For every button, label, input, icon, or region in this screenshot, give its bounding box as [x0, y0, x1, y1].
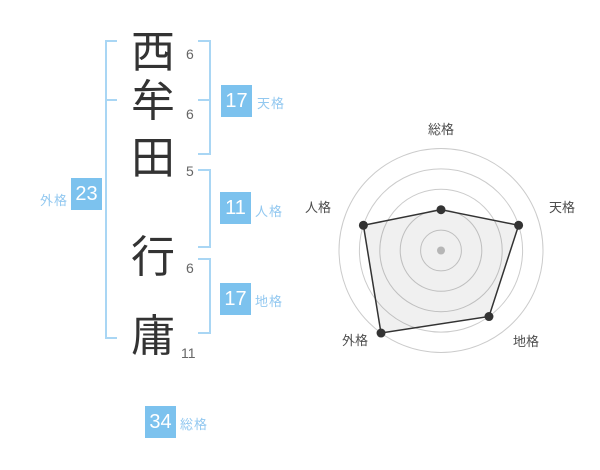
fortune-radar-chart: 総格天格地格外格人格 [303, 112, 583, 382]
gaikaku-bracket-tick-mid [105, 99, 117, 101]
gaikaku-bracket-tick-top [105, 40, 117, 42]
jinkaku-bracket-tick-bottom [198, 246, 211, 248]
name-char-4: 行 [123, 235, 183, 281]
soukaku-label: 総格 [180, 414, 208, 433]
seimei-handan-panel: 西 牟 田 行 庸 6 6 5 6 11 17 天格 11 人格 17 地格 外… [0, 0, 600, 470]
tenkaku-value-badge: 17 [221, 85, 252, 117]
radar-axis-label-2: 地格 [513, 334, 539, 349]
chikaku-value-badge: 17 [220, 283, 251, 315]
chikaku-label: 地格 [255, 291, 283, 310]
stroke-count-1: 6 [186, 46, 194, 62]
stroke-count-5: 11 [181, 345, 196, 361]
radar-chart-svg: 総格天格地格外格人格 [303, 112, 583, 382]
soukaku-value-badge: 34 [145, 406, 176, 438]
gaikaku-bracket [105, 40, 107, 339]
jinkaku-bracket-tick-top [198, 169, 211, 171]
gaikaku-bracket-tick-bottom [105, 337, 117, 339]
jinkaku-bracket [209, 169, 211, 248]
stroke-count-2: 6 [186, 106, 194, 122]
chikaku-bracket [209, 258, 211, 334]
name-char-3: 田 [123, 136, 183, 182]
tenkaku-bracket-tick-mid [198, 99, 211, 101]
stroke-count-3: 5 [186, 163, 194, 179]
stroke-count-4: 6 [186, 260, 194, 276]
tenkaku-bracket-tick-top [198, 40, 211, 42]
radar-axis-label-1: 天格 [549, 200, 575, 215]
name-char-1: 西 [123, 30, 183, 76]
tenkaku-label: 天格 [257, 93, 285, 112]
gaikaku-value-badge: 23 [71, 178, 102, 210]
name-char-2: 牟 [123, 79, 183, 125]
tenkaku-bracket [209, 40, 211, 155]
name-char-5: 庸 [123, 314, 183, 360]
radar-axis-label-3: 外格 [342, 333, 368, 348]
gaikaku-label: 外格 [40, 190, 68, 209]
chikaku-bracket-tick-bottom [198, 332, 211, 334]
jinkaku-value-badge: 11 [220, 192, 251, 224]
jinkaku-label: 人格 [255, 201, 283, 220]
radar-axis-label-4: 人格 [305, 200, 331, 215]
chikaku-bracket-tick-top [198, 258, 211, 260]
radar-axis-label-0: 総格 [428, 122, 454, 137]
tenkaku-bracket-tick-bottom [198, 153, 211, 155]
